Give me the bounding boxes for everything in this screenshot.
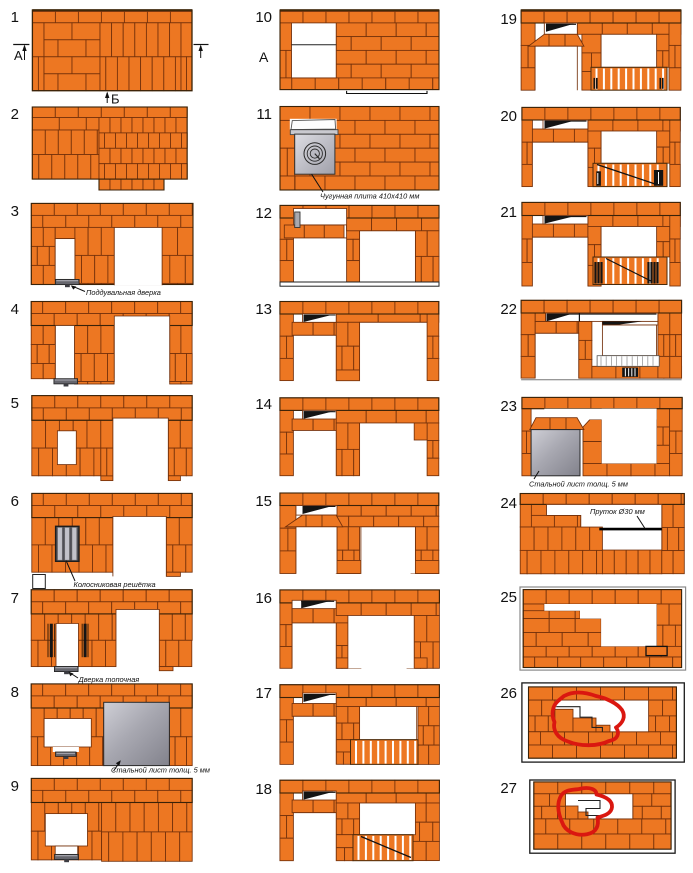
svg-text:19: 19 (500, 11, 517, 28)
svg-text:25: 25 (500, 589, 517, 606)
svg-text:21: 21 (500, 204, 517, 221)
svg-text:Б: Б (111, 92, 120, 107)
svg-text:20: 20 (500, 108, 517, 125)
svg-text:9: 9 (11, 778, 19, 795)
svg-text:3: 3 (11, 203, 19, 220)
svg-text:1: 1 (11, 9, 19, 26)
svg-text:Колосниковая решётка: Колосниковая решётка (74, 580, 156, 589)
svg-text:4: 4 (11, 301, 19, 318)
svg-text:12: 12 (255, 205, 272, 222)
svg-text:5: 5 (11, 395, 19, 412)
svg-text:27: 27 (500, 780, 517, 797)
svg-text:Стальной лист толщ. 5 мм: Стальной лист толщ. 5 мм (529, 480, 628, 489)
svg-text:13: 13 (255, 301, 272, 318)
svg-text:8: 8 (11, 684, 19, 701)
svg-text:14: 14 (255, 396, 272, 413)
svg-text:10: 10 (255, 9, 272, 26)
svg-text:17: 17 (255, 685, 272, 702)
svg-text:Дверка топочная: Дверка топочная (78, 675, 140, 684)
svg-text:7: 7 (11, 590, 19, 607)
svg-text:А: А (14, 48, 23, 63)
svg-text:23: 23 (500, 398, 517, 415)
svg-text:15: 15 (255, 493, 272, 510)
svg-text:2: 2 (11, 106, 19, 123)
svg-text:24: 24 (500, 495, 517, 512)
svg-text:Чугунная плита 410х410 мм: Чугунная плита 410х410 мм (320, 192, 419, 201)
svg-text:16: 16 (255, 590, 272, 607)
svg-text:Стальной лист толщ. 5 мм: Стальной лист толщ. 5 мм (111, 766, 210, 775)
svg-text:6: 6 (11, 493, 19, 510)
svg-text:А: А (259, 49, 269, 65)
svg-text:22: 22 (500, 301, 517, 318)
svg-text:11: 11 (256, 106, 272, 123)
svg-text:Поддувальная дверка: Поддувальная дверка (86, 288, 161, 297)
svg-text:Пруток Ø30 мм: Пруток Ø30 мм (590, 507, 645, 516)
svg-text:18: 18 (255, 781, 272, 798)
svg-text:26: 26 (500, 685, 517, 702)
